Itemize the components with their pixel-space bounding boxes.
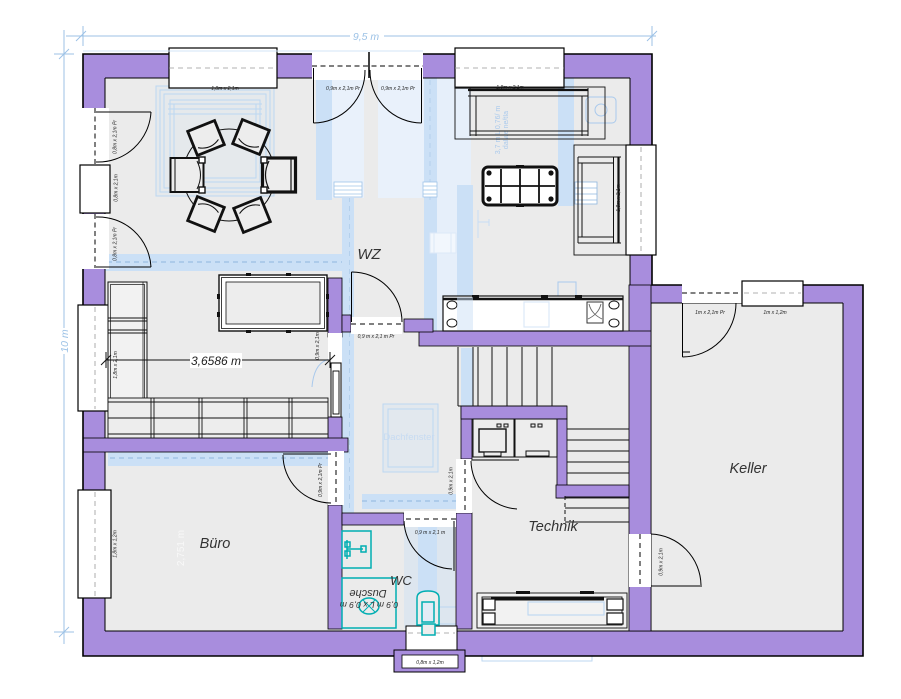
svg-text:0,9m x 2,1m: 0,9m x 2,1m bbox=[659, 548, 665, 576]
svg-text:2,751 m: 2,751 m bbox=[176, 530, 187, 566]
svg-text:Technik: Technik bbox=[528, 519, 578, 535]
svg-text:0,8m x 2,1m Pr: 0,8m x 2,1m Pr bbox=[113, 120, 119, 154]
svg-text:1,8m x 2,1m: 1,8m x 2,1m bbox=[496, 85, 524, 91]
svg-text:0,9 m L x 0,9 m: 0,9 m L x 0,9 m bbox=[340, 600, 398, 610]
svg-text:0,9m x 2,1m Pr: 0,9m x 2,1m Pr bbox=[318, 463, 324, 497]
svg-text:Dachfenster: Dachfenster bbox=[383, 432, 434, 443]
svg-text:Keller: Keller bbox=[729, 461, 767, 477]
svg-text:0,8m x 1,2m: 0,8m x 1,2m bbox=[416, 660, 444, 666]
svg-text:0,9 m x 2,1 m Pr: 0,9 m x 2,1 m Pr bbox=[358, 334, 395, 340]
svg-text:9,5 m: 9,5 m bbox=[353, 31, 380, 43]
svg-text:1,8m x 2,1m: 1,8m x 2,1m bbox=[616, 184, 622, 212]
svg-text:3,7 m L 0,76/ m: 3,7 m L 0,76/ m bbox=[495, 106, 502, 155]
svg-text:1m x 2,1m Pr: 1m x 2,1m Pr bbox=[695, 310, 725, 316]
svg-text:1,8m x 2,1m: 1,8m x 2,1m bbox=[211, 86, 239, 92]
svg-text:1,8m x 1,2m: 1,8m x 1,2m bbox=[113, 530, 119, 558]
svg-text:0,8m x 2,1m: 0,8m x 2,1m bbox=[114, 174, 120, 202]
svg-text:1,8m x 2,1m: 1,8m x 2,1m bbox=[113, 351, 119, 379]
svg-text:0,9 m x 2,1 m: 0,9 m x 2,1 m bbox=[415, 530, 445, 536]
svg-text:0,9m x 2,1m: 0,9m x 2,1m bbox=[315, 332, 321, 360]
svg-text:0,9m x 2,1m Pr: 0,9m x 2,1m Pr bbox=[326, 86, 360, 92]
svg-text:0,9m x 2,1m Pr: 0,9m x 2,1m Pr bbox=[381, 86, 415, 92]
svg-text:WC: WC bbox=[390, 573, 412, 588]
svg-text:0,8m x 2,1m Pr: 0,8m x 2,1m Pr bbox=[113, 227, 119, 261]
svg-text:daIwe ne/tIa: daIwe ne/tIa bbox=[503, 111, 510, 149]
svg-text:10 m: 10 m bbox=[59, 329, 71, 353]
svg-text:Dusche: Dusche bbox=[349, 587, 386, 599]
svg-text:1m x 1,2m: 1m x 1,2m bbox=[763, 310, 786, 316]
svg-text:0,9m x 2,1m: 0,9m x 2,1m bbox=[449, 467, 455, 495]
svg-text:3,6586 m: 3,6586 m bbox=[191, 354, 241, 368]
svg-text:Büro: Büro bbox=[200, 536, 231, 552]
svg-text:WZ: WZ bbox=[357, 246, 381, 263]
